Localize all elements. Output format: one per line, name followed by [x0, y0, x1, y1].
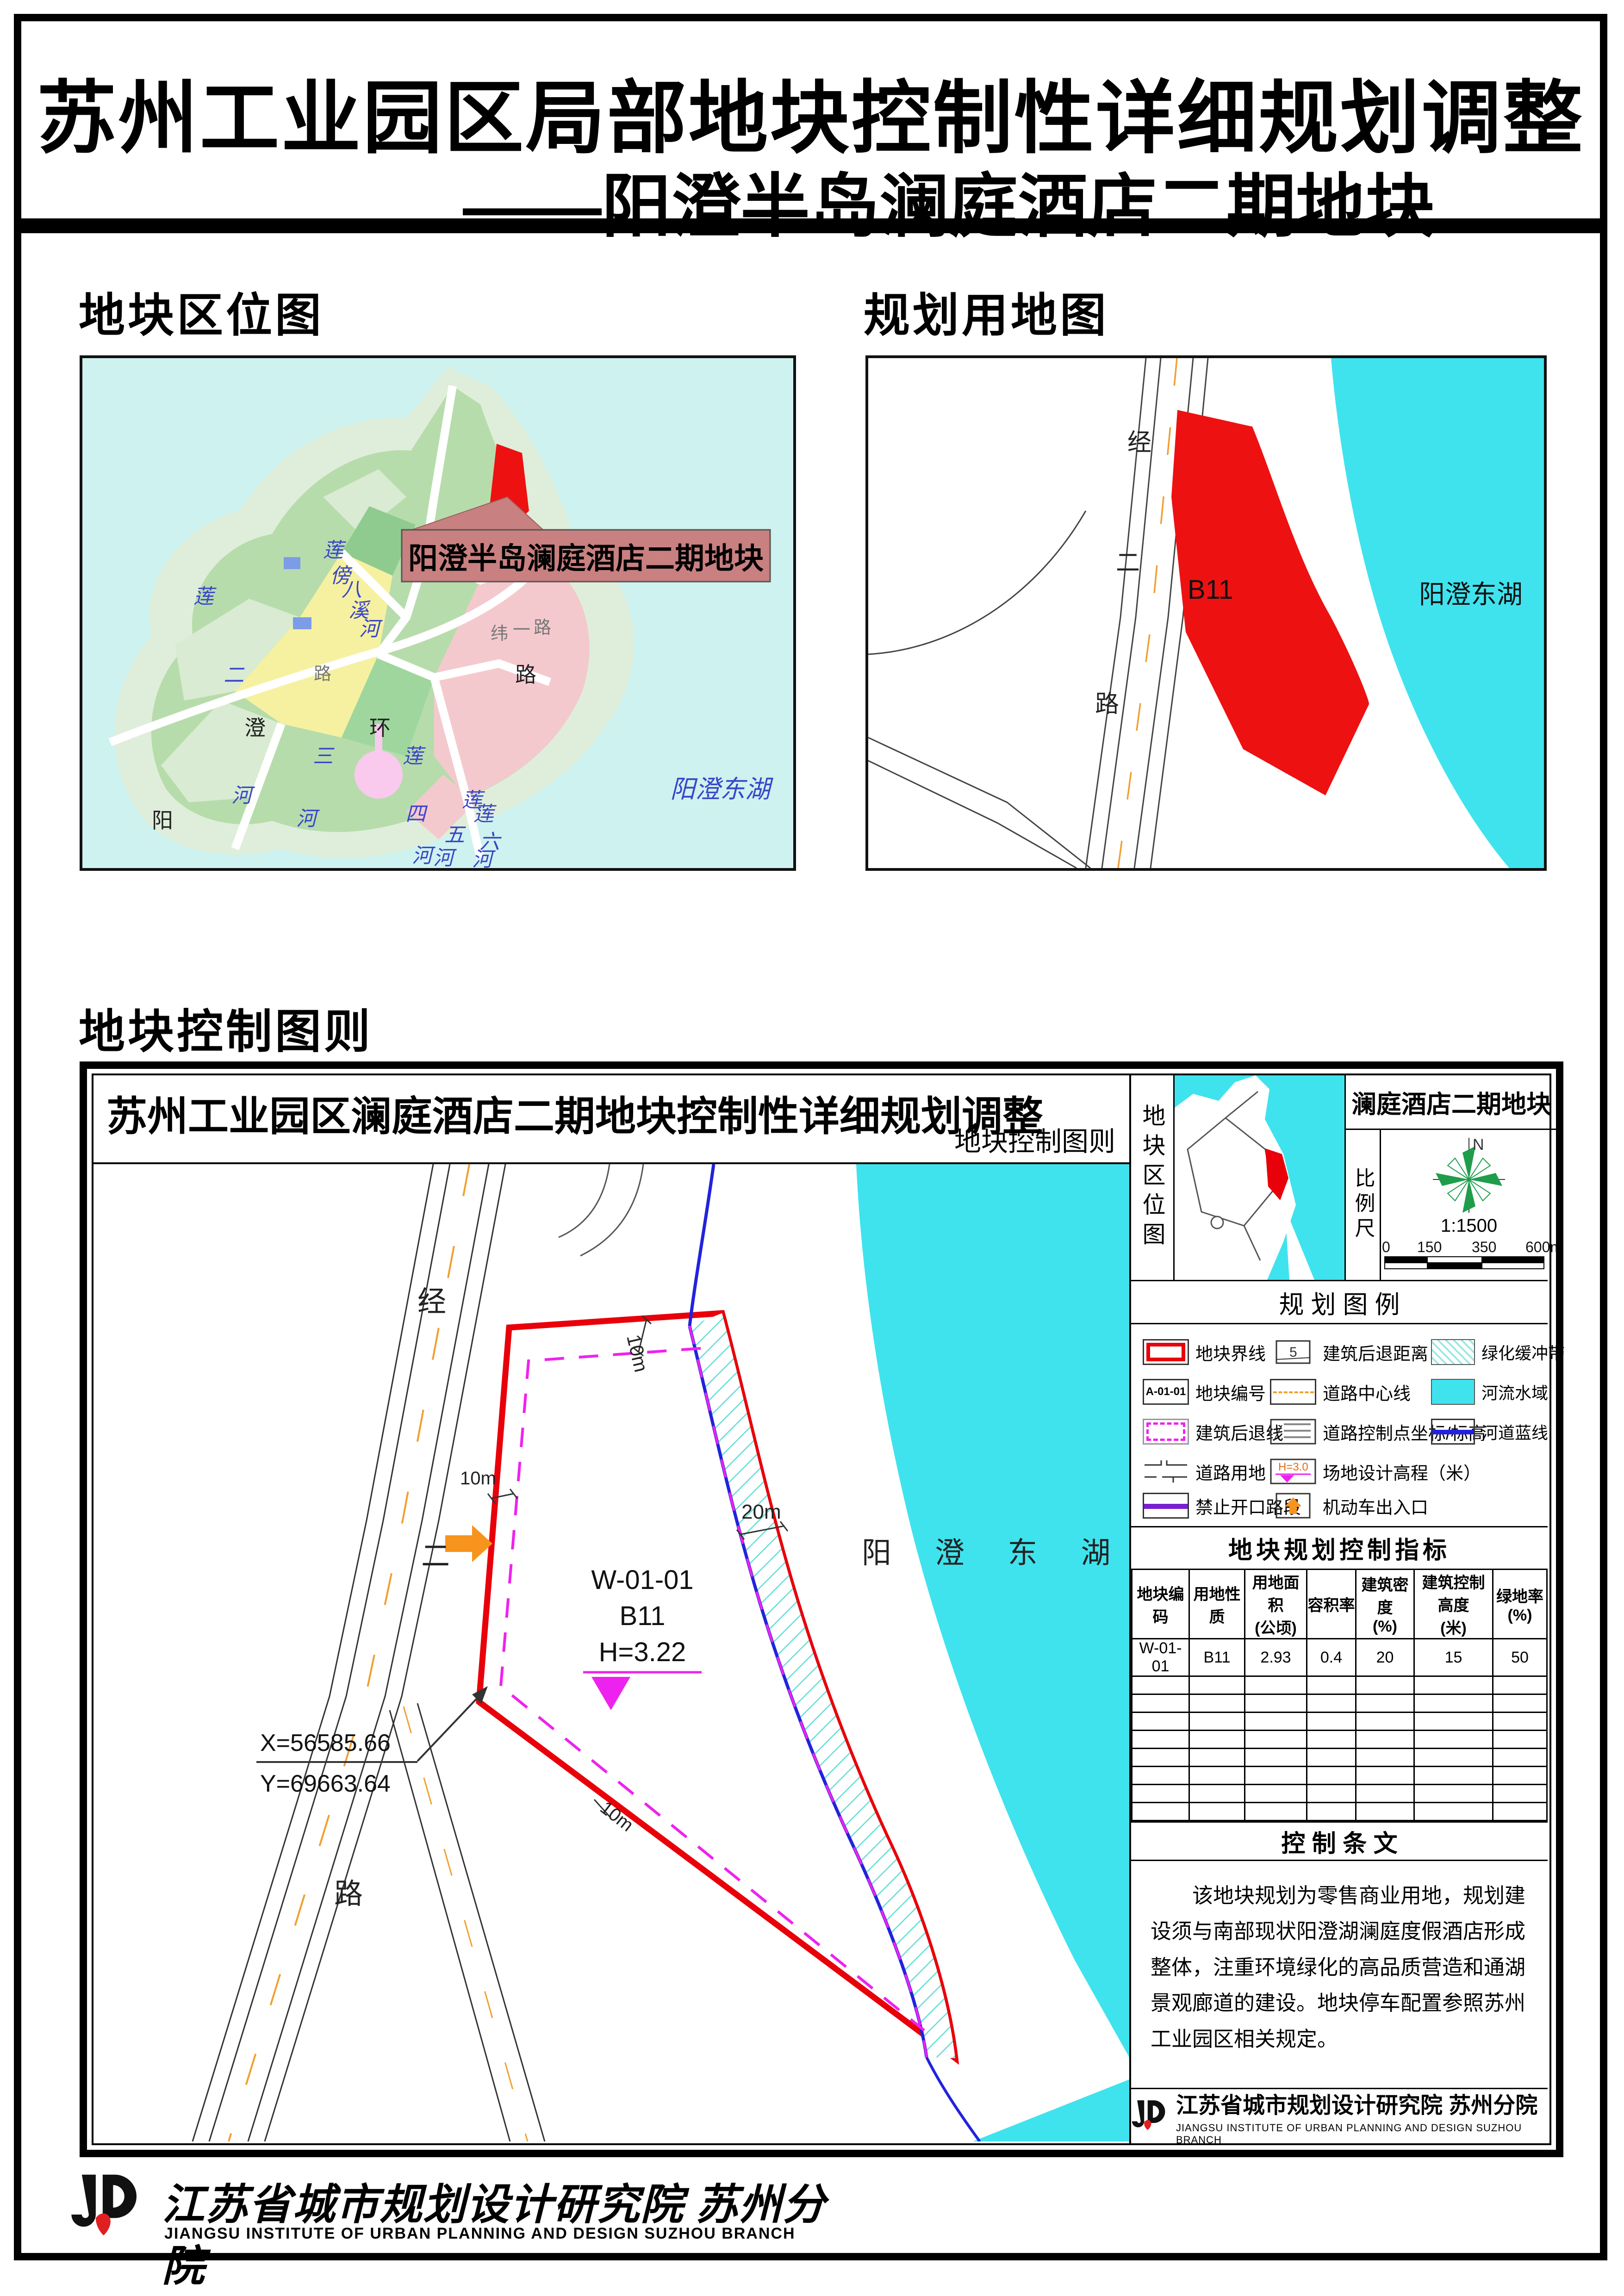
road-name-chars: 经 二 路 [1095, 429, 1151, 718]
drawing-header: 苏州工业园区澜庭酒店二期地块控制性详细规划调整 地块控制图则 [93, 1075, 1129, 1164]
section-title-control: 地块控制图则 [79, 994, 373, 1061]
svg-text:纬: 纬 [491, 624, 508, 644]
table-row-empty [1132, 1731, 1547, 1749]
svg-text:五: 五 [444, 824, 466, 846]
legend-item-boundary: 地块界线 [1143, 1339, 1266, 1365]
svg-text:莲: 莲 [403, 745, 426, 768]
svg-text:河: 河 [472, 848, 496, 868]
svg-text:路: 路 [1095, 691, 1119, 718]
scale-ratio: 1:1500 [1441, 1216, 1497, 1236]
svg-text:H=3.0: H=3.0 [1278, 1461, 1308, 1473]
legend-item-setback: 建筑后退线 [1143, 1419, 1283, 1445]
coord-arrow-line [417, 1690, 485, 1761]
table-row-empty [1132, 1713, 1547, 1731]
lake-label: 阳澄东湖 [670, 776, 773, 803]
svg-text:四: 四 [405, 803, 428, 825]
thumb-map-label: 地块区位图 [1131, 1075, 1175, 1280]
table-row-empty [1132, 1676, 1547, 1694]
svg-text:路: 路 [534, 618, 551, 638]
svg-text:600m: 600m [1525, 1239, 1557, 1255]
thumb-map [1175, 1075, 1346, 1280]
svg-text:5: 5 [1289, 1345, 1297, 1360]
scale-ticks: 0 150 350 600m [1382, 1239, 1557, 1255]
svg-text:路: 路 [515, 663, 536, 687]
svg-text:环: 环 [369, 716, 391, 740]
legend-item-water: 河流水域 [1431, 1379, 1548, 1405]
institute-strip: 江苏省城市规划设计研究院 苏州分院 JIANGSU INSTITUTE OF U… [1131, 2088, 1548, 2143]
lake-label: 阳澄东湖 [1419, 580, 1523, 609]
institute-en: JIANGSU INSTITUTE OF URBAN PLANNING AND … [1176, 2122, 1548, 2146]
header-divider [21, 218, 1600, 233]
svg-text:路: 路 [314, 664, 331, 684]
svg-text:阳: 阳 [152, 808, 173, 832]
svg-text:0: 0 [1382, 1239, 1390, 1255]
info-panel: 地块区位图 [1131, 1075, 1548, 2143]
legend-item-entrance: 机动车出入口 [1270, 1493, 1428, 1519]
indicators-table: 地块编码 用地性质 用地面积(公顷) 容积率 建筑密度(%) 建筑控制高度(米)… [1131, 1569, 1548, 1821]
svg-text:经: 经 [1127, 429, 1151, 456]
table-row-empty [1132, 1694, 1547, 1713]
control-drawing-svg: 10m 10m 20m 10m W-01-01 B11 H=3.22 X [93, 1164, 1129, 2141]
svg-text:350: 350 [1472, 1239, 1496, 1255]
legend-body: 地块界线 A-01-01 地块编号 建筑后退线 道路用地 [1131, 1324, 1548, 1526]
compass-north: N [1473, 1136, 1484, 1154]
scale-bar: 0 150 350 600m [1381, 1239, 1557, 1274]
svg-text:莲: 莲 [473, 803, 497, 825]
coord-y: Y=69663.64 [260, 1770, 391, 1797]
branch-centerline [404, 1706, 528, 2141]
legend-title: 规 划 图 例 [1131, 1280, 1548, 1324]
thumb-roundabout [1211, 1216, 1223, 1229]
page-subtitle: ——阳澄半岛澜庭酒店二期地块 [463, 150, 1435, 251]
location-map-svg: 阳澄半岛澜庭酒店二期地块 阳 澄 环 路 莲 二 河 三 河 莲 四 河 莲 五… [82, 358, 793, 868]
svg-text:澄: 澄 [244, 716, 266, 740]
scale-bar-segments [1385, 1257, 1544, 1269]
svg-text:B11: B11 [620, 1601, 666, 1631]
road-outline [868, 358, 1208, 868]
lake-label: 阳 澄 东 湖 [862, 1536, 1128, 1570]
blue-block2 [293, 617, 311, 629]
road-junction-curves [559, 1164, 643, 1256]
svg-text:八: 八 [342, 578, 362, 601]
table-row-empty [1132, 1749, 1547, 1767]
blue-block1 [284, 557, 300, 569]
svg-text:莲: 莲 [193, 585, 217, 608]
svg-text:河: 河 [412, 844, 436, 867]
svg-text:莲: 莲 [323, 539, 346, 562]
landuse-map: B11 阳澄东湖 经 二 路 [865, 355, 1547, 871]
compass-rose: N [1413, 1136, 1524, 1214]
legend-item-elevation: H=3.0 场地设计高程（米） [1270, 1458, 1481, 1484]
section-title-landuse: 规划用地图 [864, 278, 1109, 345]
road-name-chars: 经 二 路 [334, 1286, 450, 1910]
coord-x: X=56585.66 [260, 1730, 391, 1756]
legend-item-blueline: 河道蓝线 [1431, 1419, 1548, 1445]
pink-pond [355, 751, 403, 799]
drawing-header-right: 地块控制图则 [954, 1120, 1115, 1159]
institute-logo-icon [1131, 2097, 1169, 2136]
svg-text:二: 二 [1116, 550, 1140, 577]
provisions-title: 控 制 条 文 [1131, 1821, 1548, 1861]
svg-text:河: 河 [433, 847, 457, 868]
dim-east: 20m [741, 1501, 781, 1523]
svg-text:路: 路 [334, 1878, 363, 1910]
river-blue-line-upper [690, 1164, 714, 1326]
dim-west: 10m [460, 1468, 496, 1489]
footer-logo-icon [69, 2173, 148, 2242]
institute-cn: 江苏省城市规划设计研究院 苏州分院 [1176, 2087, 1548, 2119]
control-chart-frame: 苏州工业园区澜庭酒店二期地块控制性详细规划调整 地块控制图则 [80, 1061, 1563, 2157]
legend-item-parcelcode: A-01-01 地块编号 [1143, 1379, 1266, 1405]
river-blue-line-lower [927, 2057, 980, 2141]
table-row-empty [1132, 1803, 1547, 1821]
plot-label-text: 阳澄半岛澜庭酒店二期地块 [408, 542, 764, 575]
footer: 江苏省城市规划设计研究院 苏州分院 JIANGSU INSTITUTE OF U… [69, 2170, 856, 2249]
legend-item-centerline: 道路中心线 [1270, 1379, 1411, 1405]
svg-text:经: 经 [417, 1286, 446, 1318]
svg-text:河: 河 [359, 618, 383, 640]
thumb-map-svg [1175, 1075, 1344, 1280]
section-title-location: 地块区位图 [79, 278, 324, 345]
provisions-text: 该地块规划为零售商业用地，规划建设须与南部现状阳澄湖澜庭度假酒店形成整体，注重环… [1131, 1861, 1548, 2088]
landuse-map-svg: B11 阳澄东湖 经 二 路 [868, 358, 1544, 868]
svg-text:河: 河 [231, 784, 255, 807]
plan-sheet: 苏州工业园区局部地块控制性详细规划调整 ——阳澄半岛澜庭酒店二期地块 地块区位图… [0, 0, 1624, 2296]
drawing-column: 苏州工业园区澜庭酒店二期地块控制性详细规划调整 地块控制图则 [93, 1075, 1131, 2143]
svg-text:W-01-01: W-01-01 [591, 1565, 693, 1595]
legend-item-buffer: 绿化缓冲带 [1431, 1339, 1565, 1365]
table-row-empty [1132, 1785, 1547, 1803]
table-row: W-01-01B11 2.930.4 2015 50 [1132, 1639, 1547, 1676]
scale-label: 比例尺 [1346, 1130, 1381, 1280]
lake-water [1331, 358, 1544, 868]
indicators-title: 地块规划控制指标 [1131, 1526, 1548, 1569]
parcel-b11-label: B11 [1188, 575, 1233, 605]
svg-text:H=3.22: H=3.22 [599, 1637, 686, 1667]
footer-institute-en: JIANGSU INSTITUTE OF URBAN PLANNING AND … [164, 2225, 796, 2243]
panel-title: 澜庭酒店二期地块 [1346, 1075, 1557, 1130]
table-row-empty [1132, 1767, 1547, 1785]
vehicle-entrance-arrow [445, 1525, 492, 1562]
svg-text:三: 三 [313, 745, 335, 768]
lake-water-wedge [973, 2079, 1129, 2141]
svg-text:二: 二 [421, 1540, 450, 1572]
svg-text:150: 150 [1417, 1239, 1442, 1255]
svg-text:一: 一 [513, 621, 530, 640]
location-map: 阳澄半岛澜庭酒店二期地块 阳 澄 环 路 莲 二 河 三 河 莲 四 河 莲 五… [80, 355, 796, 871]
svg-text:二: 二 [224, 664, 245, 687]
legend-item-roadland: 道路用地 [1143, 1458, 1266, 1484]
svg-text:河: 河 [296, 807, 320, 830]
